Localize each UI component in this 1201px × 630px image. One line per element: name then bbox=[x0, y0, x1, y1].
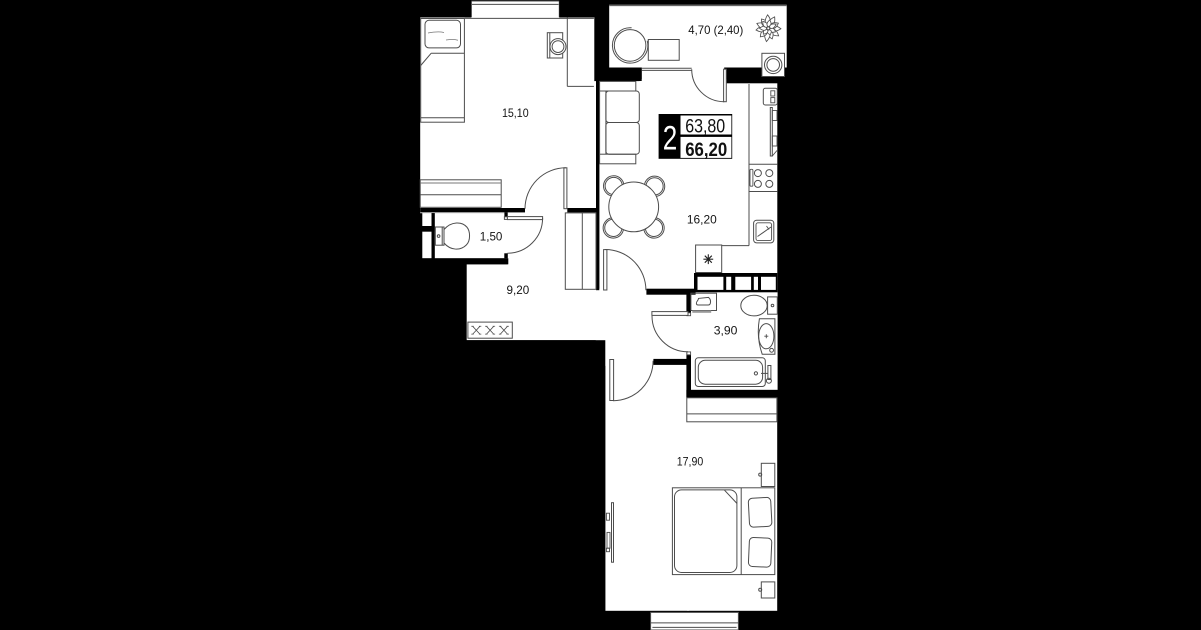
svg-text:16,20: 16,20 bbox=[687, 213, 717, 227]
svg-text:17,90: 17,90 bbox=[677, 454, 704, 468]
svg-text:66,20: 66,20 bbox=[685, 139, 727, 161]
svg-text:1,50: 1,50 bbox=[480, 229, 503, 243]
svg-text:4,70 (2,40): 4,70 (2,40) bbox=[688, 23, 743, 37]
svg-text:15,10: 15,10 bbox=[502, 106, 529, 120]
svg-text:63,80: 63,80 bbox=[685, 116, 725, 137]
svg-text:9,20: 9,20 bbox=[507, 283, 530, 297]
svg-text:3,90: 3,90 bbox=[714, 323, 738, 337]
svg-text:2: 2 bbox=[663, 119, 678, 157]
